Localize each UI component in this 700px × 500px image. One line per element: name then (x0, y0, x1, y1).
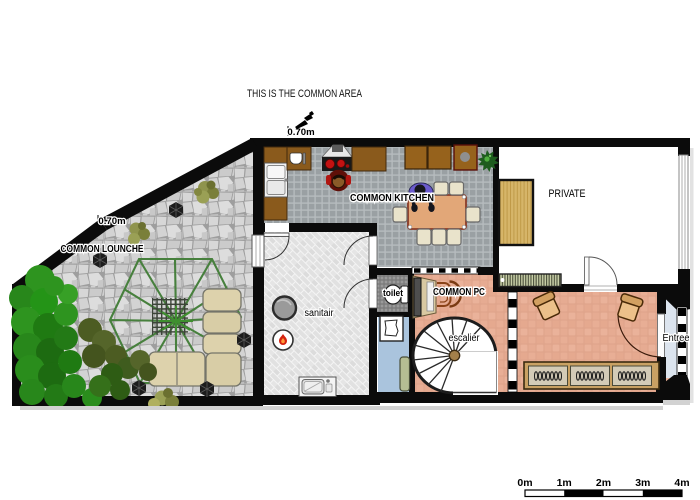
svg-text:toilet: toilet (383, 288, 404, 299)
svg-text:0m: 0m (517, 477, 532, 489)
svg-text:3m: 3m (635, 477, 650, 489)
svg-text:2m: 2m (596, 477, 611, 489)
svg-text:0.70m: 0.70m (287, 127, 314, 138)
svg-text:PRIVATE: PRIVATE (549, 188, 586, 200)
svg-text:THIS IS THE COMMON AREA: THIS IS THE COMMON AREA (247, 88, 363, 100)
svg-text:COMMON KITCHEN: COMMON KITCHEN (350, 192, 434, 204)
svg-text:sanitair: sanitair (305, 308, 335, 319)
svg-text:0.70m: 0.70m (98, 216, 125, 227)
svg-text:COMMON LOUNCHE: COMMON LOUNCHE (61, 244, 144, 255)
svg-text:Entree: Entree (663, 332, 690, 344)
svg-text:4m: 4m (674, 477, 689, 489)
svg-text:escalier: escalier (449, 333, 481, 344)
svg-text:COMMON PC: COMMON PC (433, 287, 485, 298)
svg-text:1m: 1m (557, 477, 572, 489)
